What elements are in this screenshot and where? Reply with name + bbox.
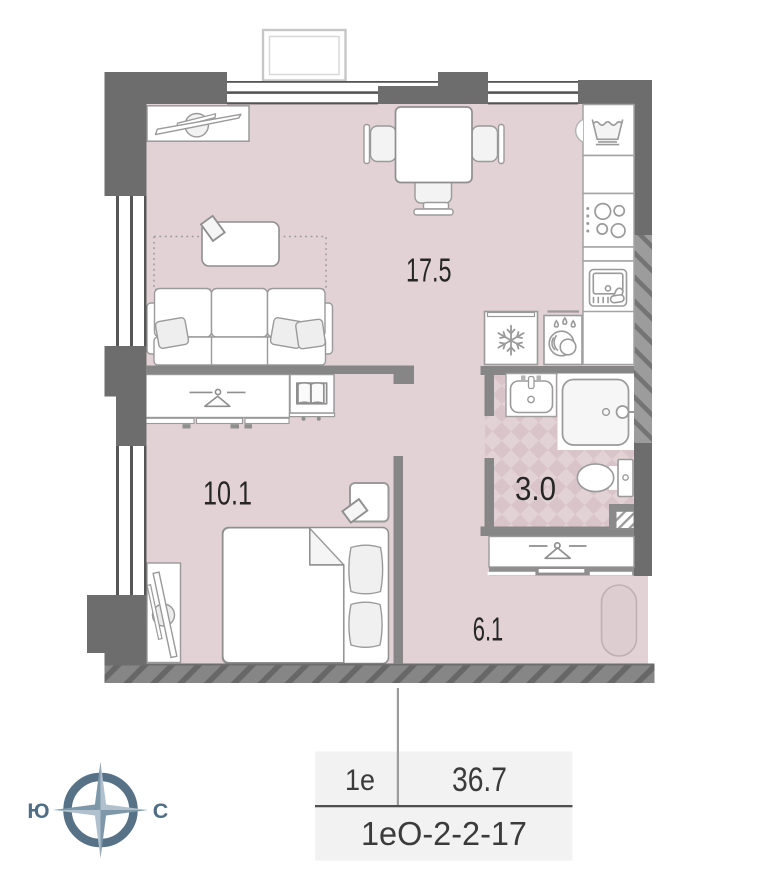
svg-text:С: С — [153, 799, 169, 823]
svg-text:Ю: Ю — [27, 799, 49, 823]
svg-text:17.5: 17.5 — [406, 253, 452, 290]
svg-text:6.1: 6.1 — [473, 612, 504, 649]
svg-text:36.7: 36.7 — [452, 761, 507, 799]
svg-text:3.0: 3.0 — [515, 471, 556, 508]
svg-text:1еО-2-2-17: 1еО-2-2-17 — [361, 815, 527, 852]
svg-text:10.1: 10.1 — [203, 476, 252, 513]
svg-text:1е: 1е — [345, 764, 375, 797]
